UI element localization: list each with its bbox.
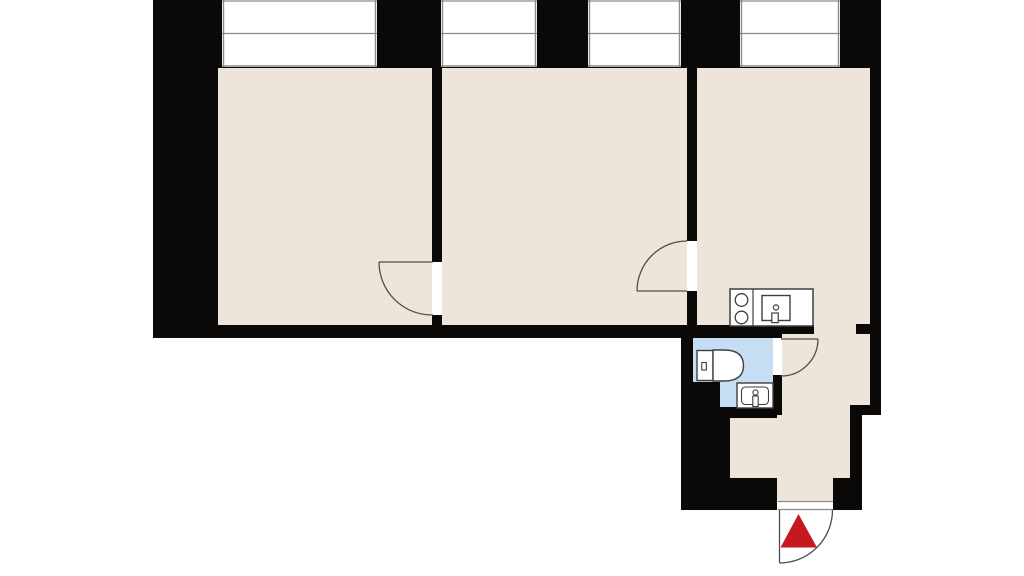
right-wall-step	[850, 405, 881, 415]
entrance-marker-triangle	[781, 514, 818, 548]
kitchen-sink-drain	[773, 305, 778, 310]
bathroom-floor-step	[693, 382, 720, 408]
washbasin-tap-head	[753, 390, 758, 395]
corridor-floor	[782, 334, 870, 415]
toilet-bowl	[713, 350, 744, 381]
entry-left-block	[681, 478, 777, 510]
door-opening-right	[687, 241, 697, 291]
door-opening-left	[432, 262, 442, 315]
toilet-flush-button	[702, 363, 707, 371]
left-wall	[153, 0, 218, 338]
bathroom-top-wall	[681, 325, 782, 338]
floor-plan-canvas	[0, 0, 1024, 576]
vestibule-floor	[777, 478, 833, 502]
kitchen-sink-faucet	[772, 313, 778, 323]
passage-wall-stub	[856, 324, 871, 334]
stove-burner-bottom	[735, 311, 748, 324]
bottom-wall-main	[153, 325, 697, 338]
bathroom-door-opening	[773, 338, 782, 375]
entrance-door-opening	[778, 501, 833, 510]
bathroom-left-wall	[681, 325, 693, 407]
washbasin-tap-body	[753, 396, 758, 407]
floor-plan-page	[0, 0, 1024, 576]
entry-right-block	[833, 478, 862, 510]
right-wall	[870, 0, 881, 415]
room-middle-floor	[441, 67, 688, 338]
stove-burner-top	[735, 294, 748, 307]
room-left-floor	[218, 67, 433, 338]
right-wall-lower	[850, 415, 862, 480]
hallway-floor	[730, 415, 850, 478]
